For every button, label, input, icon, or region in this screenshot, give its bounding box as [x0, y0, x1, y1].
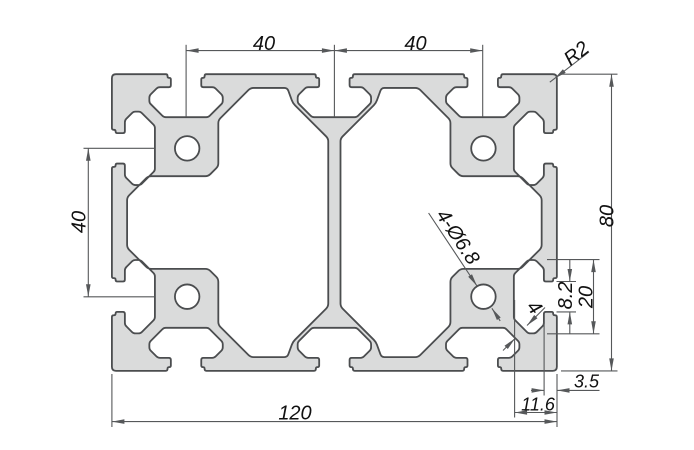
svg-text:40: 40: [69, 211, 91, 233]
svg-text:20: 20: [575, 286, 597, 309]
svg-text:11.6: 11.6: [521, 395, 556, 415]
svg-text:3.5: 3.5: [574, 372, 600, 392]
svg-text:40: 40: [404, 33, 426, 55]
svg-text:8.2: 8.2: [555, 282, 577, 310]
svg-text:80: 80: [597, 205, 619, 227]
svg-text:40: 40: [253, 33, 275, 55]
svg-text:4-Ø6.8: 4-Ø6.8: [431, 206, 483, 269]
svg-text:120: 120: [278, 403, 311, 425]
svg-text:R2: R2: [560, 37, 594, 70]
